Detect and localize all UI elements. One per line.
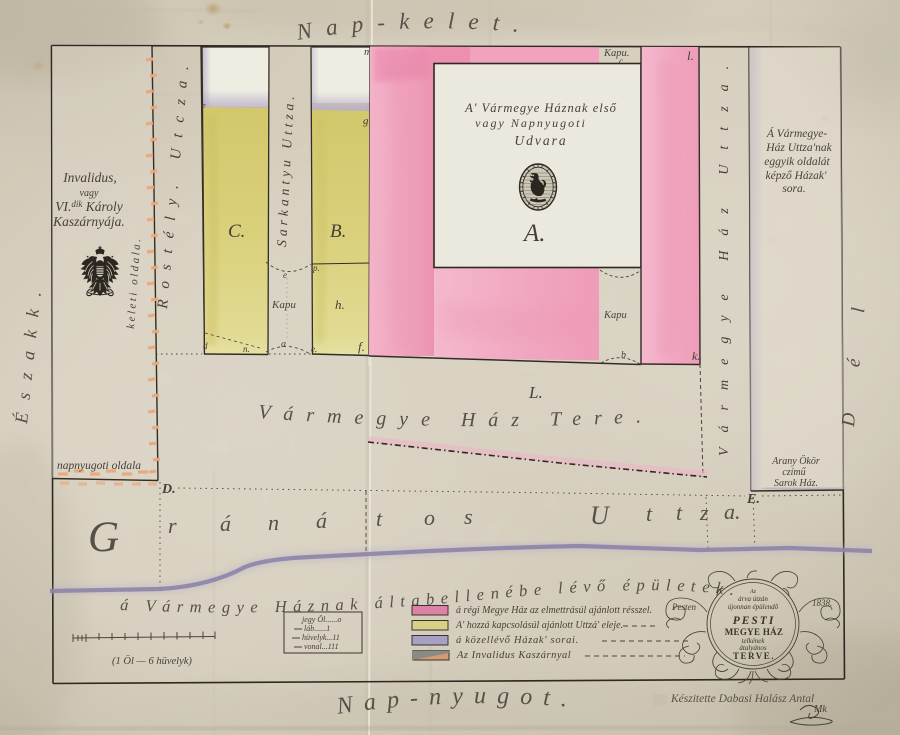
svg-text:eggyik oldalát: eggyik oldalát <box>764 156 830 168</box>
svg-text:Készitette Dabasi Halász Antal: Készitette Dabasi Halász Antal <box>670 693 814 705</box>
svg-text:czímű: czímű <box>782 467 806 478</box>
svg-text:Udvara: Udvara <box>514 133 567 148</box>
svg-text:Kapu: Kapu <box>603 310 627 321</box>
svg-text:f.: f. <box>358 339 365 354</box>
svg-text:napnyugoti oldala: napnyugoti oldala <box>57 460 141 472</box>
svg-text:n: n <box>268 510 279 535</box>
svg-text:Mk: Mk <box>813 704 827 715</box>
svg-text:a: a <box>281 339 286 350</box>
svg-text:Kaszárnyája.: Kaszárnyája. <box>52 214 125 229</box>
svg-text:hüvelyk...11: hüvelyk...11 <box>302 633 340 642</box>
svg-text:p.: p. <box>312 263 320 273</box>
svg-text:á: á <box>220 511 231 536</box>
svg-text:Az Invalidus Kaszárnyal: Az Invalidus Kaszárnyal <box>456 650 571 661</box>
svg-text:G: G <box>88 514 119 561</box>
svg-text:d: d <box>203 341 208 351</box>
svg-text:Sarok Ház.: Sarok Ház. <box>774 478 818 489</box>
svg-text:A' hozzá kapcsolásúl ajánlott: A' hozzá kapcsolásúl ajánlott Uttzá' ele… <box>455 620 623 631</box>
svg-text:r: r <box>168 513 177 538</box>
svg-text:o: o <box>424 505 435 530</box>
svg-text:B.: B. <box>330 221 346 242</box>
svg-text:sora.: sora. <box>782 183 805 195</box>
svg-text:A' Vármegye Háznak első: A' Vármegye Háznak első <box>464 101 617 115</box>
svg-text:t: t <box>376 506 383 531</box>
svg-text:k.: k. <box>692 349 700 363</box>
svg-text:vagy: vagy <box>80 188 99 199</box>
svg-text:b: b <box>621 350 626 361</box>
svg-text:Ház Uttza'nak: Ház Uttza'nak <box>765 142 832 154</box>
svg-text:vonal...111: vonal...111 <box>304 642 339 651</box>
svg-text:Pesten: Pesten <box>671 602 696 612</box>
svg-text:s: s <box>464 504 473 529</box>
svg-text:PESTI: PESTI <box>733 615 776 627</box>
svg-text:n.: n. <box>243 344 250 354</box>
svg-text:t: t <box>676 500 683 525</box>
svg-text:E.: E. <box>746 492 760 507</box>
svg-text:Vármegye Ház Uttza.: Vármegye Ház Uttza. <box>717 51 732 456</box>
svg-text:A.: A. <box>522 220 546 247</box>
svg-text:Á Vármegye-: Á Vármegye- <box>766 126 828 140</box>
svg-text:(1 Öl — 6 hüvelyk): (1 Öl — 6 hüvelyk) <box>112 655 192 667</box>
svg-text:MEGYE HÁZ: MEGYE HÁZ <box>725 627 783 637</box>
svg-text:l.: l. <box>687 48 694 63</box>
svg-text:vagy Napnyugoti: vagy Napnyugoti <box>475 116 587 130</box>
svg-text:árva útzán: árva útzán <box>738 595 768 603</box>
svg-text:Kapu.: Kapu. <box>603 48 629 59</box>
svg-text:á: á <box>316 508 327 533</box>
svg-text:z: z <box>699 500 709 525</box>
svg-text:L.: L. <box>528 383 543 402</box>
svg-text:e: e <box>283 270 287 280</box>
svg-text:C.: C. <box>228 221 245 242</box>
svg-text:h.: h. <box>335 297 345 312</box>
svg-text:D.: D. <box>161 482 176 497</box>
svg-text:e: e <box>202 101 206 110</box>
svg-text:Invalidus,: Invalidus, <box>62 170 117 185</box>
svg-text:jegy Öl......o: jegy Öl......o <box>301 615 341 624</box>
svg-text:t: t <box>646 501 653 526</box>
svg-text:Kapu: Kapu <box>271 299 296 311</box>
svg-text:1838.: 1838. <box>812 598 832 608</box>
svg-text:TERVE.: TERVE. <box>733 651 775 661</box>
svg-text:á régi Megye Ház az elmettrású: á régi Megye Ház az elmettrásúl ajánlott… <box>456 605 652 616</box>
svg-text:á közellévő Házak' sorai.: á közellévő Házak' sorai. <box>456 635 579 646</box>
svg-text:e.: e. <box>311 344 317 354</box>
svg-text:képző Házak': képző Házak' <box>766 169 827 182</box>
svg-text:U: U <box>590 501 611 530</box>
svg-text:Arany Ökör: Arany Ökör <box>771 455 820 467</box>
svg-text:a.: a. <box>724 499 741 524</box>
svg-text:újonnan épülendő: újonnan épülendő <box>728 603 779 611</box>
svg-text:láb......1: láb......1 <box>304 624 330 633</box>
svg-text:VI.dik Károly: VI.dik Károly <box>55 199 123 214</box>
